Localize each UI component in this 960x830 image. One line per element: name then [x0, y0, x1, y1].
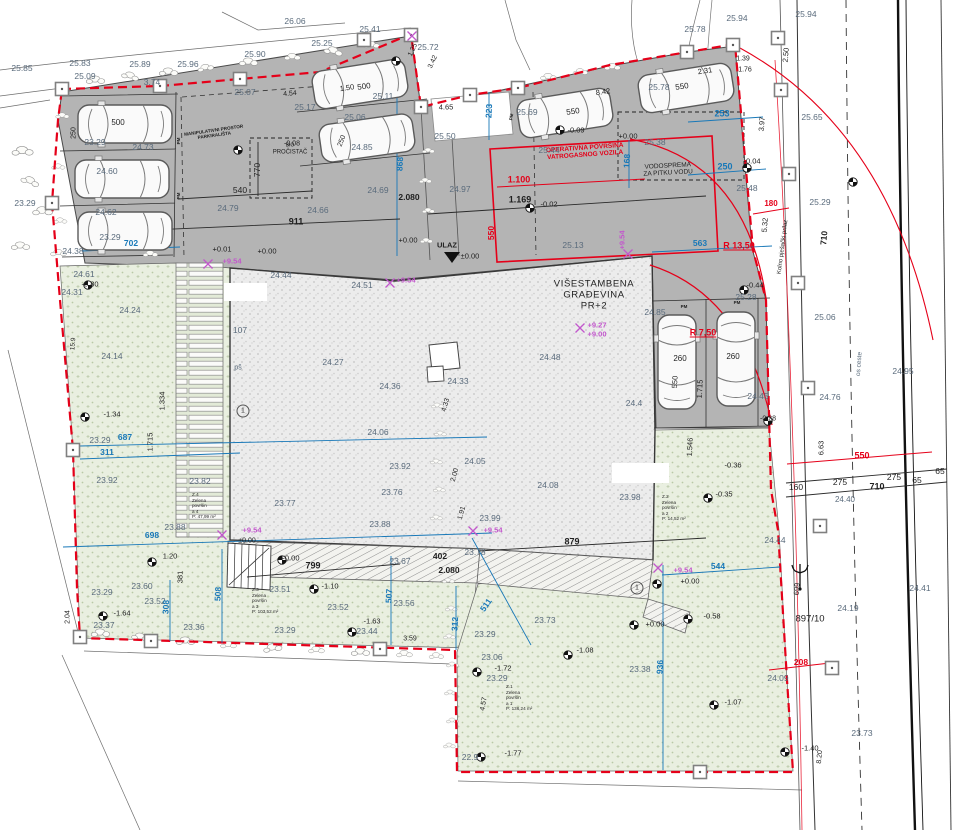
slat-strip [176, 263, 223, 537]
building-footprint [230, 256, 655, 560]
stairs [227, 543, 271, 590]
site-plan: VIŠESTAMBENA GRAĐEVINA PR+2 OPERATIVNA P… [0, 0, 960, 830]
site-plan-drawing [0, 0, 960, 830]
